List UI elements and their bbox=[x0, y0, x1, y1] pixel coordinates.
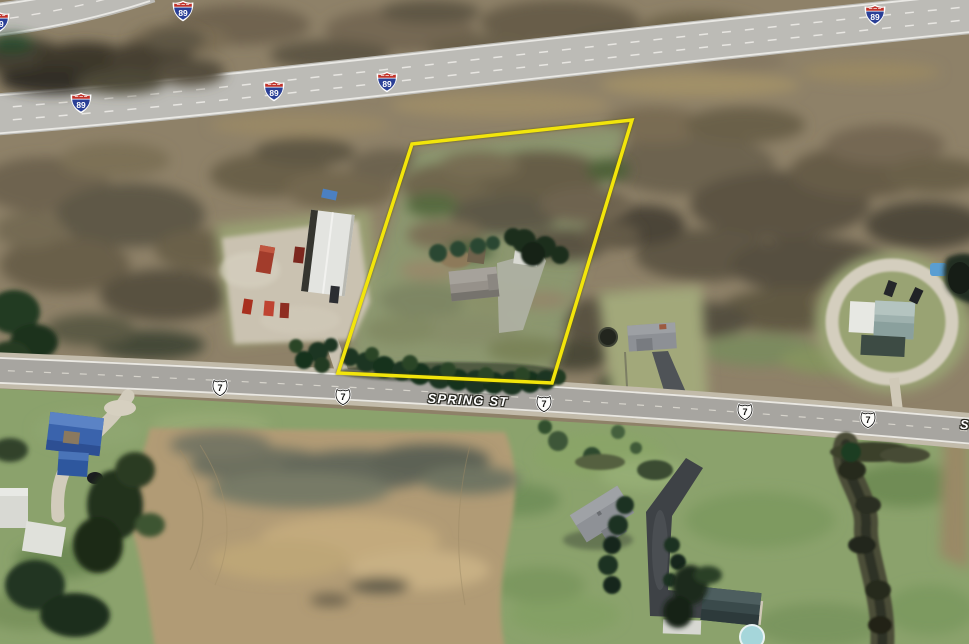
dark-roof-house bbox=[700, 587, 761, 626]
dark-car bbox=[329, 286, 340, 304]
blue-roof-garage bbox=[57, 451, 89, 477]
red-car bbox=[263, 301, 274, 317]
red-truck bbox=[293, 246, 305, 263]
blue-roof-house bbox=[46, 412, 104, 456]
swimming-pool bbox=[740, 625, 764, 644]
red-car bbox=[280, 303, 290, 318]
white-shed bbox=[22, 521, 66, 557]
plowed-field bbox=[130, 428, 520, 644]
aerial-imagery bbox=[0, 0, 969, 644]
parcel-house bbox=[449, 267, 500, 302]
map-canvas[interactable]: 89 89 89 89 89 bbox=[0, 0, 969, 644]
